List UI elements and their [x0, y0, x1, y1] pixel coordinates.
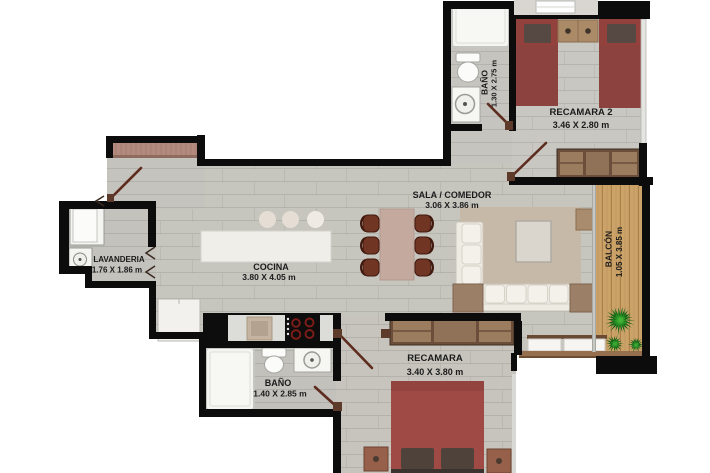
svg-text:LAVANDERIA: LAVANDERIA — [93, 255, 144, 264]
svg-text:1.76 X 1.86 m: 1.76 X 1.86 m — [92, 266, 142, 275]
svg-text:1.40 X 2.85 m: 1.40 X 2.85 m — [253, 389, 307, 399]
svg-text:1.05 X 3.85 m: 1.05 X 3.85 m — [615, 227, 624, 277]
svg-text:3.46 X 2.80 m: 3.46 X 2.80 m — [553, 120, 610, 130]
svg-text:COCINA: COCINA — [253, 262, 289, 272]
svg-text:BAÑO: BAÑO — [265, 378, 292, 388]
svg-text:3.80 X 4.05 m: 3.80 X 4.05 m — [242, 272, 296, 282]
svg-text:RECAMARA: RECAMARA — [407, 353, 463, 364]
svg-text:RECAMARA 2: RECAMARA 2 — [550, 107, 613, 118]
svg-text:3.06 X 3.86 m: 3.06 X 3.86 m — [425, 200, 479, 210]
svg-text:SALA / COMEDOR: SALA / COMEDOR — [413, 190, 492, 200]
svg-text:BAÑO: BAÑO — [480, 70, 490, 95]
svg-text:3.40 X 3.80 m: 3.40 X 3.80 m — [407, 367, 464, 377]
svg-text:BALCÓN: BALCÓN — [603, 231, 614, 267]
svg-text:1.30 X 2.75 m: 1.30 X 2.75 m — [490, 60, 499, 107]
